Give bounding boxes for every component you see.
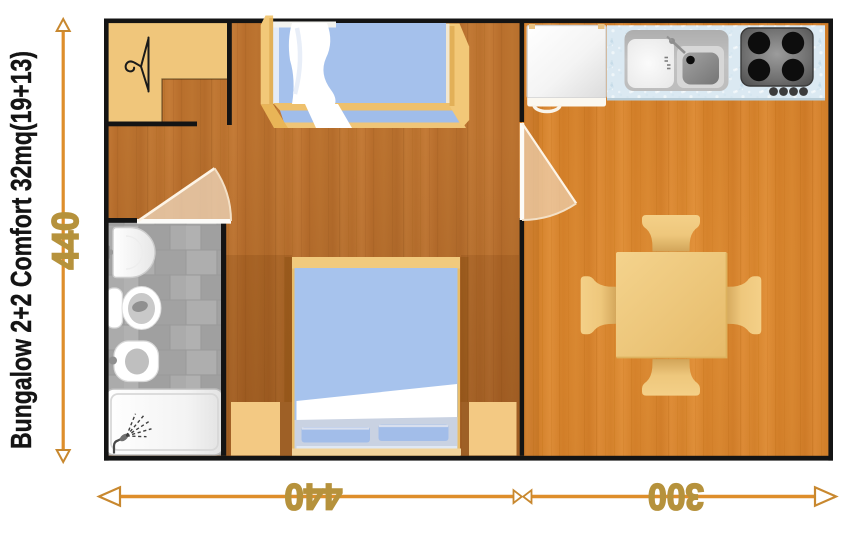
svg-text:440: 440 [45,212,86,270]
svg-text:Bungalow 2+2 Comfort 32mq(19+1: Bungalow 2+2 Comfort 32mq(19+13) [6,51,38,449]
svg-text:440: 440 [284,476,342,517]
svg-text:300: 300 [648,476,704,517]
